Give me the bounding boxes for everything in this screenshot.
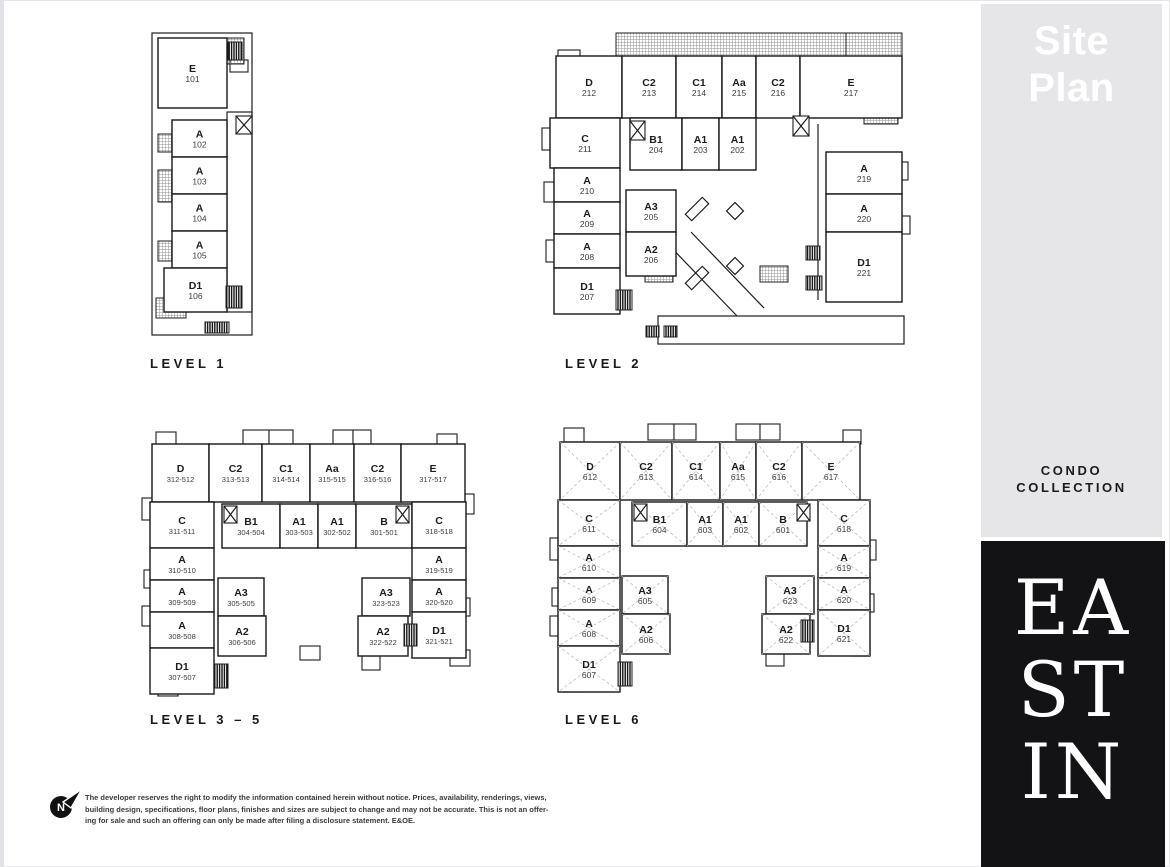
unit-205: A3205 <box>626 190 676 232</box>
svg-text:C: C <box>435 515 443 527</box>
unit-312-512: D312-512 <box>152 444 209 502</box>
svg-text:A: A <box>435 586 443 598</box>
unit-307-507: D1307-507 <box>150 648 214 694</box>
level-1-label: LEVEL 1 <box>150 356 227 371</box>
svg-text:101: 101 <box>185 74 199 84</box>
site-plan-page: { "header": { "title_line1": "Site", "ti… <box>0 0 1170 867</box>
unit-605: A3605 <box>622 576 668 614</box>
level-2-label: LEVEL 2 <box>565 356 642 371</box>
unit-611: C611 <box>558 500 620 546</box>
svg-text:216: 216 <box>771 88 785 98</box>
svg-text:619: 619 <box>837 563 851 573</box>
svg-text:319-519: 319-519 <box>425 566 453 575</box>
unit-607: D1607 <box>558 646 620 692</box>
svg-text:323-523: 323-523 <box>372 599 400 608</box>
unit-216: C2216 <box>756 56 800 118</box>
svg-text:307-507: 307-507 <box>168 673 196 682</box>
unit-620: A620 <box>818 578 870 610</box>
brand-logo: EA ST IN <box>981 541 1165 867</box>
unit-320-520: A320-520 <box>412 580 466 612</box>
level-3-5-plan: D312-512C2313-513C1314-514Aa315-515C2316… <box>142 430 474 696</box>
svg-text:211: 211 <box>578 144 592 154</box>
svg-text:102: 102 <box>192 140 206 150</box>
north-arrow-icon: N <box>44 786 88 824</box>
svg-text:302-502: 302-502 <box>323 528 351 537</box>
unit-317-517: E317-517 <box>401 444 465 502</box>
unit-318-518: C318-518 <box>412 502 466 548</box>
svg-text:301-501: 301-501 <box>370 528 398 537</box>
svg-text:204: 204 <box>649 145 663 155</box>
svg-text:A2: A2 <box>235 626 249 638</box>
svg-text:A1: A1 <box>292 516 306 528</box>
svg-text:207: 207 <box>580 292 594 302</box>
svg-text:A: A <box>178 586 186 598</box>
unit-213: C2213 <box>622 56 676 118</box>
svg-text:609: 609 <box>582 595 596 605</box>
svg-text:203: 203 <box>693 145 707 155</box>
unit-322-522: A2322-522 <box>358 616 408 656</box>
disclaimer-line-1: The developer reserves the right to modi… <box>85 792 548 804</box>
unit-106: D1106 <box>164 268 227 312</box>
page-title-line-2: Plan <box>981 65 1162 112</box>
unit-610: A610 <box>558 546 620 578</box>
svg-text:312-512: 312-512 <box>167 475 195 484</box>
svg-text:610: 610 <box>582 563 596 573</box>
svg-text:305-505: 305-505 <box>227 599 255 608</box>
svg-text:606: 606 <box>639 635 653 645</box>
svg-text:209: 209 <box>580 219 594 229</box>
svg-text:621: 621 <box>837 634 851 644</box>
unit-302-502: A1302-502 <box>318 504 356 548</box>
svg-text:D: D <box>177 463 185 475</box>
unit-321-521: D1321-521 <box>412 612 466 658</box>
unit-212: D212 <box>556 56 622 118</box>
svg-text:A1: A1 <box>330 516 344 528</box>
disclaimer-text: The developer reserves the right to modi… <box>85 792 548 827</box>
svg-text:605: 605 <box>638 596 652 606</box>
unit-101: E101 <box>158 38 227 108</box>
unit-314-514: C1314-514 <box>262 444 310 502</box>
brand-row-3: IN <box>981 731 1165 813</box>
svg-text:310-510: 310-510 <box>168 566 196 575</box>
svg-text:103: 103 <box>192 177 206 187</box>
level-6-label: LEVEL 6 <box>565 712 642 727</box>
svg-text:221: 221 <box>857 268 871 278</box>
unit-623: A3623 <box>766 576 814 614</box>
unit-609: A609 <box>558 578 620 610</box>
unit-608: A608 <box>558 610 620 646</box>
brand-row-2: ST <box>981 649 1165 731</box>
svg-text:E: E <box>429 463 436 475</box>
svg-text:322-522: 322-522 <box>369 638 397 647</box>
site-plan-panel: Site Plan CONDO COLLECTION <box>981 4 1162 537</box>
unit-104: A104 <box>172 194 227 231</box>
svg-text:604: 604 <box>652 525 666 535</box>
svg-text:106: 106 <box>188 291 202 301</box>
unit-309-509: A309-509 <box>150 580 214 612</box>
svg-text:603: 603 <box>698 525 712 535</box>
collection-label: CONDO COLLECTION <box>981 462 1162 496</box>
svg-text:N: N <box>57 802 65 814</box>
unit-606: A2606 <box>622 614 670 654</box>
svg-text:321-521: 321-521 <box>425 637 453 646</box>
unit-603: A1603 <box>687 502 723 546</box>
svg-text:A3: A3 <box>379 587 393 599</box>
svg-text:303-503: 303-503 <box>285 528 313 537</box>
unit-315-515: Aa315-515 <box>310 444 354 502</box>
unit-621: D1621 <box>818 610 870 656</box>
unit-207: D1207 <box>554 268 620 314</box>
svg-text:214: 214 <box>692 88 706 98</box>
svg-text:202: 202 <box>730 145 744 155</box>
svg-text:208: 208 <box>580 252 594 262</box>
page-title: Site Plan <box>981 4 1162 112</box>
unit-614: C1614 <box>672 442 720 500</box>
svg-text:614: 614 <box>689 472 703 482</box>
svg-text:C: C <box>178 515 186 527</box>
svg-text:309-509: 309-509 <box>168 598 196 607</box>
svg-text:618: 618 <box>837 524 851 534</box>
unit-308-508: A308-508 <box>150 612 214 648</box>
level-2-plan: D212C2213C1214Aa215C2216E217C211A210A209… <box>542 33 910 344</box>
svg-text:215: 215 <box>732 88 746 98</box>
svg-text:320-520: 320-520 <box>425 598 453 607</box>
unit-313-513: C2313-513 <box>209 444 262 502</box>
svg-text:612: 612 <box>583 472 597 482</box>
brand-row-1: EA <box>981 567 1165 649</box>
svg-text:613: 613 <box>639 472 653 482</box>
unit-103: A103 <box>172 157 227 194</box>
unit-203: A1203 <box>682 118 719 170</box>
unit-208: A208 <box>554 234 620 268</box>
svg-text:A: A <box>178 620 186 632</box>
svg-text:205: 205 <box>644 212 658 222</box>
svg-text:311-511: 311-511 <box>169 527 195 536</box>
svg-text:A3: A3 <box>234 587 248 599</box>
svg-text:306-506: 306-506 <box>228 638 256 647</box>
svg-text:A: A <box>178 554 186 566</box>
unit-618: C618 <box>818 500 870 546</box>
svg-text:C2: C2 <box>229 463 243 475</box>
collection-line-1: CONDO <box>981 462 1162 479</box>
svg-text:D1: D1 <box>432 625 446 637</box>
disclaimer-line-2: building design, specifications, floor p… <box>85 804 548 816</box>
level-1-plan: E101A102A103A104A105D1106 <box>152 33 252 335</box>
unit-102: A102 <box>172 120 227 157</box>
unit-105: A105 <box>172 231 227 268</box>
svg-text:Aa: Aa <box>325 463 339 475</box>
unit-602: A1602 <box>723 502 759 546</box>
unit-311-511: C311-511 <box>150 502 214 548</box>
svg-text:212: 212 <box>582 88 596 98</box>
unit-617: E617 <box>802 442 860 500</box>
svg-text:316-516: 316-516 <box>364 475 392 484</box>
svg-text:601: 601 <box>776 525 790 535</box>
svg-text:B1: B1 <box>244 516 258 528</box>
unit-215: Aa215 <box>722 56 756 118</box>
unit-619: A619 <box>818 546 870 578</box>
svg-text:105: 105 <box>192 251 206 261</box>
svg-text:304-504: 304-504 <box>237 528 265 537</box>
svg-text:620: 620 <box>837 595 851 605</box>
svg-text:C2: C2 <box>371 463 385 475</box>
unit-323-523: A3323-523 <box>362 578 410 616</box>
svg-text:308-508: 308-508 <box>168 632 196 641</box>
svg-text:615: 615 <box>731 472 745 482</box>
svg-text:D1: D1 <box>175 661 189 673</box>
svg-text:220: 220 <box>857 214 871 224</box>
unit-612: D612 <box>560 442 620 500</box>
svg-text:314-514: 314-514 <box>272 475 300 484</box>
level-3-5-label: LEVEL 3 – 5 <box>150 712 263 727</box>
unit-303-503: A1303-503 <box>280 504 318 548</box>
unit-202: A1202 <box>719 118 756 170</box>
unit-310-510: A310-510 <box>150 548 214 580</box>
disclaimer-line-3: ing for sale and such an offering can on… <box>85 815 548 827</box>
svg-text:C1: C1 <box>279 463 293 475</box>
svg-text:213: 213 <box>642 88 656 98</box>
svg-text:318-518: 318-518 <box>425 527 453 536</box>
unit-319-519: A319-519 <box>412 548 466 580</box>
svg-text:611: 611 <box>582 524 596 534</box>
svg-text:210: 210 <box>580 186 594 196</box>
page-title-line-1: Site <box>981 18 1162 65</box>
unit-206: A2206 <box>626 232 676 276</box>
svg-text:219: 219 <box>857 174 871 184</box>
svg-text:602: 602 <box>734 525 748 535</box>
unit-615: Aa615 <box>720 442 756 500</box>
unit-221: D1221 <box>826 232 902 302</box>
unit-209: A209 <box>554 202 620 234</box>
svg-text:217: 217 <box>844 88 858 98</box>
level-6-plan: D612C2613C1614Aa615C2616E617C611B1604A16… <box>550 424 876 692</box>
svg-text:317-517: 317-517 <box>419 475 447 484</box>
unit-613: C2613 <box>620 442 672 500</box>
svg-text:A2: A2 <box>376 626 390 638</box>
svg-text:315-515: 315-515 <box>318 475 346 484</box>
svg-text:104: 104 <box>192 214 206 224</box>
svg-text:623: 623 <box>783 596 797 606</box>
svg-text:B: B <box>380 516 388 528</box>
svg-text:608: 608 <box>582 629 596 639</box>
unit-210: A210 <box>554 168 620 202</box>
unit-214: C1214 <box>676 56 722 118</box>
svg-text:617: 617 <box>824 472 838 482</box>
unit-217: E217 <box>800 56 902 118</box>
unit-616: C2616 <box>756 442 802 500</box>
unit-306-506: A2306-506 <box>218 616 266 656</box>
unit-305-505: A3305-505 <box>218 578 264 616</box>
svg-text:622: 622 <box>779 635 793 645</box>
unit-211: C211 <box>550 118 620 168</box>
svg-text:206: 206 <box>644 255 658 265</box>
svg-text:607: 607 <box>582 670 596 680</box>
unit-220: A220 <box>826 194 902 232</box>
svg-text:313-513: 313-513 <box>222 475 250 484</box>
svg-text:616: 616 <box>772 472 786 482</box>
unit-219: A219 <box>826 152 902 194</box>
svg-text:A: A <box>435 554 443 566</box>
unit-316-516: C2316-516 <box>354 444 401 502</box>
collection-line-2: COLLECTION <box>981 479 1162 496</box>
